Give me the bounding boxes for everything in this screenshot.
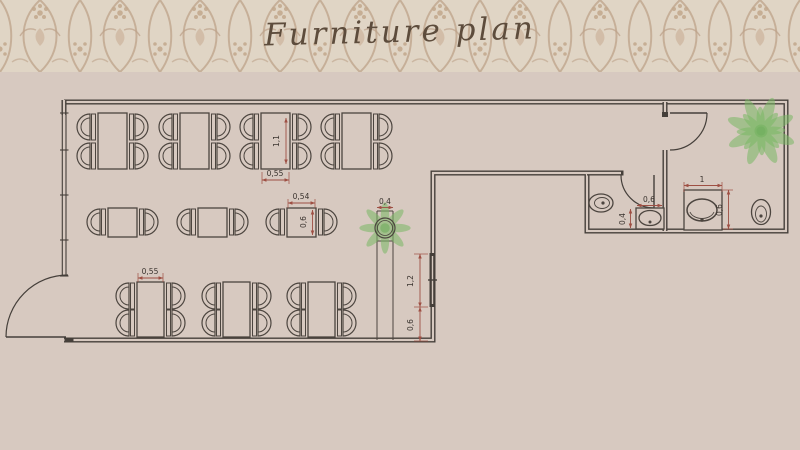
page: Furniture plan (0, 0, 800, 450)
svg-text:0,55: 0,55 (267, 169, 284, 178)
dimension-label: 0,6 (406, 307, 428, 341)
dimension-label: 0,4 (377, 197, 393, 208)
table-4seat (159, 113, 230, 169)
dimension-label: 0,4 (618, 209, 631, 228)
svg-text:0,6: 0,6 (299, 216, 308, 228)
dining-tables-top-row (77, 113, 392, 169)
dining-tables-bottom-row (116, 282, 356, 337)
svg-text:0,6: 0,6 (643, 195, 655, 204)
entrance-door (6, 275, 68, 337)
svg-text:0,6: 0,6 (406, 319, 415, 331)
dimension-label: 0,55 (138, 267, 163, 282)
table-4seat (321, 113, 392, 169)
table-4seat (116, 282, 185, 337)
svg-text:0,55: 0,55 (142, 267, 159, 276)
wc-toilet-icon (589, 194, 613, 212)
wc-sink-icon (636, 208, 664, 229)
table-4seat (202, 282, 271, 337)
restroom-door-main (670, 113, 707, 150)
svg-text:0,4: 0,4 (618, 213, 627, 225)
table-4seat (287, 282, 356, 337)
table-2seat (87, 208, 158, 237)
interior-window (428, 253, 437, 307)
dimension-label: 0,55 (262, 169, 289, 184)
dining-plant-icon (359, 202, 410, 253)
table-2seat (177, 208, 248, 237)
floor-plan: 1,1 0,55 0,54 0,6 0,55 (0, 0, 800, 450)
svg-text:1: 1 (700, 175, 705, 184)
table-4seat (77, 113, 148, 169)
restroom-toilet-icon (752, 200, 771, 225)
window-wall-left (60, 113, 69, 276)
svg-text:1,1: 1,1 (272, 135, 281, 147)
dimension-label: 0,54 (288, 192, 315, 208)
svg-text:0,54: 0,54 (293, 192, 310, 201)
svg-text:1,2: 1,2 (406, 275, 415, 287)
dimension-label: 1,2 (406, 254, 428, 307)
svg-text:0,4: 0,4 (379, 197, 391, 206)
svg-text:0,6: 0,6 (715, 204, 724, 216)
dimension-label: 0,6 (637, 195, 662, 206)
